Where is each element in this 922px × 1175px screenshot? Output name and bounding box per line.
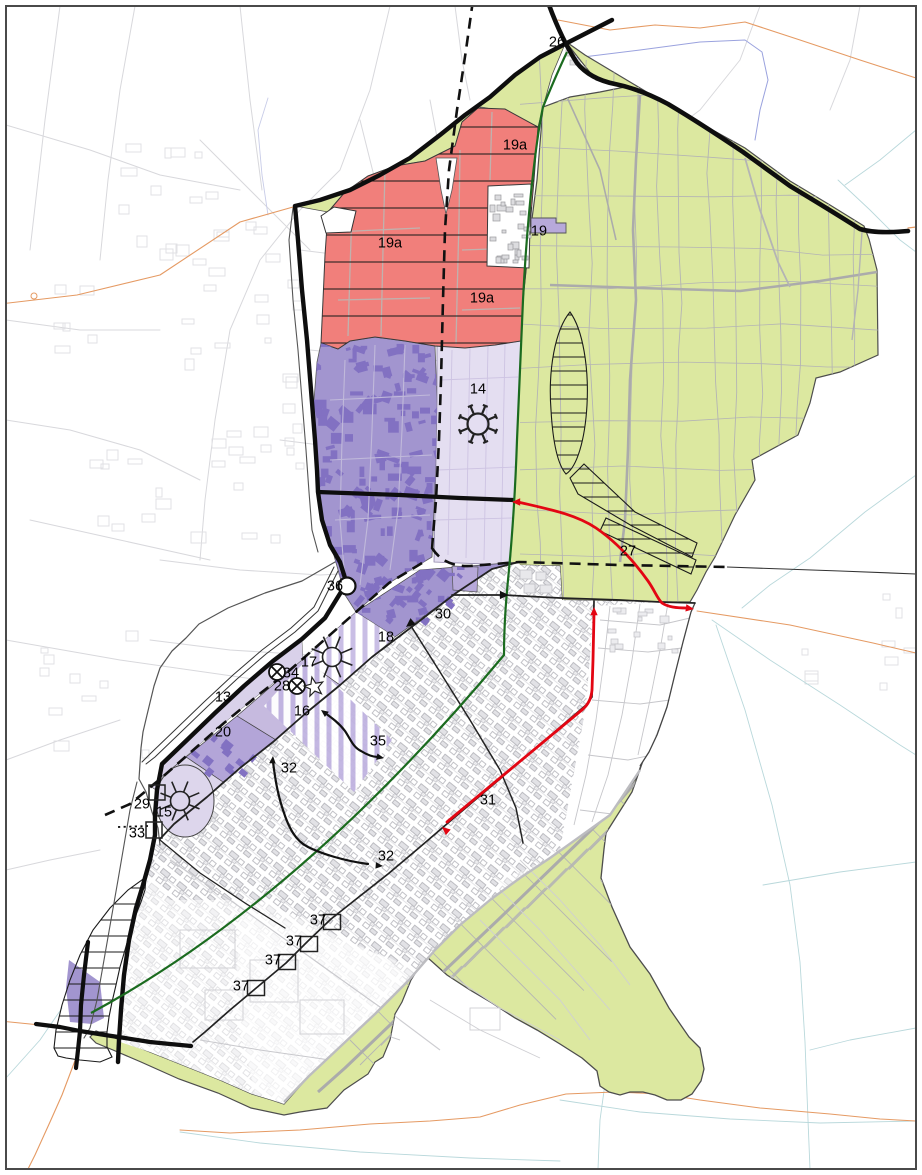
svg-text:37: 37 (286, 934, 302, 950)
svg-text:32: 32 (378, 849, 394, 865)
svg-text:27: 27 (620, 544, 636, 560)
svg-text:16: 16 (294, 704, 310, 720)
svg-text:20: 20 (215, 725, 231, 741)
svg-text:32: 32 (281, 761, 297, 777)
svg-text:17: 17 (301, 655, 317, 671)
svg-text:36: 36 (327, 579, 343, 595)
svg-text:31: 31 (480, 793, 496, 809)
svg-text:19a: 19a (503, 138, 528, 154)
svg-text:35: 35 (370, 734, 386, 750)
svg-text:19: 19 (531, 224, 547, 240)
svg-text:28: 28 (274, 679, 290, 695)
svg-text:19a: 19a (378, 236, 403, 252)
svg-text:13: 13 (215, 690, 231, 706)
svg-text:19a: 19a (470, 291, 495, 307)
svg-text:29: 29 (134, 797, 150, 813)
svg-text:37: 37 (310, 913, 326, 929)
svg-text:14: 14 (470, 382, 486, 398)
svg-text:33: 33 (129, 826, 145, 842)
svg-text:15: 15 (156, 805, 172, 821)
svg-text:37: 37 (233, 979, 249, 995)
svg-text:30: 30 (435, 607, 451, 623)
svg-text:18: 18 (378, 630, 394, 646)
svg-text:37: 37 (265, 953, 281, 969)
svg-text:26: 26 (549, 35, 565, 51)
